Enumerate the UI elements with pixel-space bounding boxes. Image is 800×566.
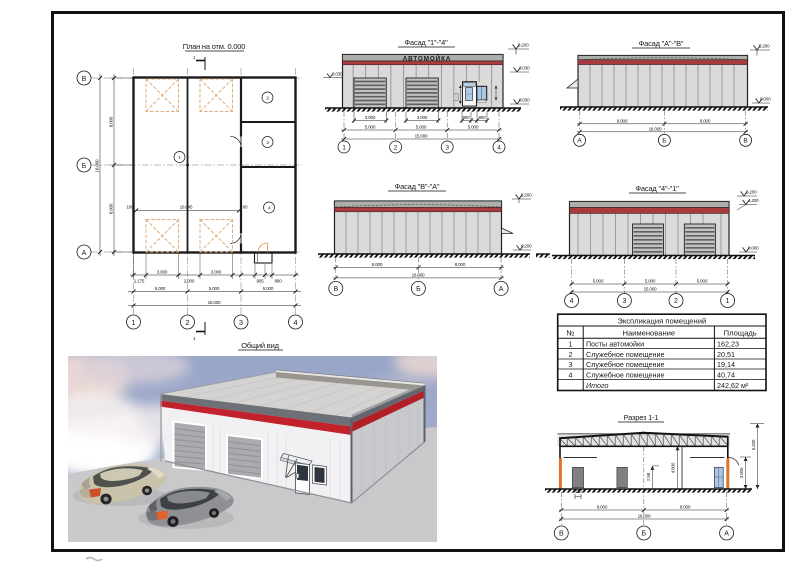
svg-text:5.200: 5.200 [759, 44, 770, 49]
svg-text:Площадь: Площадь [724, 328, 757, 337]
svg-text:15.000: 15.000 [644, 287, 657, 292]
svg-text:Б: Б [642, 531, 647, 538]
svg-text:242,62 м²: 242,62 м² [717, 381, 749, 390]
svg-text:Экспликация помещений: Экспликация помещений [617, 316, 706, 325]
svg-text:4.800: 4.800 [671, 462, 676, 473]
svg-text:А: А [577, 138, 582, 145]
svg-text:3.000: 3.000 [417, 115, 428, 120]
svg-text:2: 2 [185, 318, 189, 327]
svg-text:10.045: 10.045 [180, 205, 193, 210]
svg-text:19,14: 19,14 [717, 360, 735, 369]
svg-text:0.000: 0.000 [748, 246, 759, 251]
svg-text:1: 1 [726, 298, 730, 305]
svg-text:3: 3 [239, 318, 243, 327]
svg-text:Общий вид: Общий вид [241, 341, 279, 350]
svg-text:16.000: 16.000 [95, 159, 100, 172]
svg-text:Б: Б [662, 138, 666, 145]
svg-text:880: 880 [274, 279, 282, 284]
svg-text:3: 3 [622, 298, 626, 305]
svg-text:162,23: 162,23 [717, 340, 739, 349]
svg-text:3: 3 [569, 360, 573, 369]
svg-text:60: 60 [243, 205, 248, 210]
svg-text:Б: Б [416, 286, 421, 293]
svg-text:3.000: 3.000 [365, 115, 376, 120]
svg-text:16.000: 16.000 [649, 126, 662, 131]
svg-text:А: А [82, 250, 87, 257]
svg-text:Наименование: Наименование [622, 328, 675, 337]
svg-text:В: В [82, 76, 87, 83]
svg-text:100: 100 [126, 205, 134, 210]
svg-text:8.000: 8.000 [597, 505, 608, 510]
svg-text:8.000: 8.000 [700, 118, 711, 123]
svg-text:3.000: 3.000 [157, 270, 168, 275]
svg-text:3.000: 3.000 [211, 270, 222, 275]
svg-text:Фасад "В"-"А": Фасад "В"-"А" [395, 182, 440, 191]
svg-text:8.000: 8.000 [617, 118, 628, 123]
svg-text:15.000: 15.000 [415, 134, 428, 139]
svg-text:5.000: 5.000 [416, 125, 427, 130]
svg-text:3.030: 3.030 [332, 72, 343, 77]
svg-text:Служебное помещение: Служебное помещение [586, 350, 665, 359]
svg-text:5.000: 5.000 [365, 125, 376, 130]
svg-text:8.000: 8.000 [372, 262, 383, 267]
svg-text:4: 4 [497, 144, 501, 151]
svg-text:5.000: 5.000 [645, 279, 656, 284]
svg-text:3: 3 [445, 144, 449, 151]
svg-text:4: 4 [570, 298, 574, 305]
svg-text:Б: Б [82, 163, 87, 170]
svg-text:4.200: 4.200 [748, 198, 759, 203]
svg-text:5.000: 5.000 [209, 286, 220, 291]
svg-text:16.000: 16.000 [412, 272, 425, 277]
svg-text:Фасад "4"-"1": Фасад "4"-"1" [635, 184, 679, 193]
svg-text:2: 2 [569, 350, 573, 359]
svg-text:2.58: 2.58 [646, 472, 651, 481]
svg-text:План на отм. 0.000: План на отм. 0.000 [183, 42, 246, 51]
svg-text:5.000: 5.000 [155, 286, 166, 291]
svg-text:8.000: 8.000 [680, 505, 691, 510]
svg-text:5.000: 5.000 [593, 279, 604, 284]
svg-text:1.175: 1.175 [134, 279, 145, 284]
svg-text:8.000: 8.000 [109, 116, 114, 127]
svg-text:А: А [724, 531, 729, 538]
svg-text:2.000: 2.000 [184, 279, 195, 284]
svg-text:№: № [566, 328, 574, 337]
svg-text:8.000: 8.000 [109, 203, 114, 214]
svg-text:5.000: 5.000 [468, 125, 479, 130]
svg-text:40,74: 40,74 [717, 371, 735, 380]
svg-text:905: 905 [256, 279, 264, 284]
svg-text:0.200: 0.200 [521, 244, 532, 249]
svg-text:Посты автомойки: Посты автомойки [586, 340, 644, 349]
svg-text:4: 4 [293, 318, 297, 327]
svg-text:А: А [499, 286, 504, 293]
svg-text:4: 4 [569, 371, 573, 380]
svg-text:900: 900 [478, 115, 486, 120]
svg-text:16.000: 16.000 [638, 514, 651, 519]
svg-text:В: В [743, 138, 747, 145]
svg-text:1: 1 [342, 144, 346, 151]
svg-text:420: 420 [574, 489, 582, 494]
svg-text:8.000: 8.000 [455, 262, 466, 267]
svg-text:3.030: 3.030 [519, 66, 530, 71]
svg-text:Разрез 1-1: Разрез 1-1 [624, 413, 659, 422]
svg-text:5.000: 5.000 [263, 286, 274, 291]
svg-text:Фасад "1"-"4": Фасад "1"-"4" [404, 38, 448, 47]
svg-text:3.000: 3.000 [739, 467, 744, 478]
svg-text:5.000: 5.000 [697, 279, 708, 284]
svg-text:5.200: 5.200 [518, 43, 529, 48]
svg-text:Служебное помещение: Служебное помещение [586, 360, 665, 369]
svg-text:0.030: 0.030 [519, 98, 530, 103]
svg-text:0.000: 0.000 [760, 97, 771, 102]
svg-text:Фасад "А"-"В": Фасад "А"-"В" [639, 39, 684, 48]
svg-text:1: 1 [131, 318, 135, 327]
svg-text:20,51: 20,51 [717, 350, 735, 359]
svg-text:2: 2 [674, 298, 678, 305]
svg-text:Итого: Итого [586, 381, 609, 390]
svg-text:5.200: 5.200 [521, 193, 532, 198]
svg-text:900: 900 [462, 115, 470, 120]
svg-text:15.000: 15.000 [208, 300, 221, 305]
svg-text:В: В [333, 286, 338, 293]
svg-text:1: 1 [569, 340, 573, 349]
svg-text:В: В [559, 531, 564, 538]
svg-text:5.200: 5.200 [751, 439, 756, 450]
svg-text:Служебное помещение: Служебное помещение [586, 371, 665, 380]
svg-text:2: 2 [394, 144, 398, 151]
svg-text:5.200: 5.200 [746, 190, 757, 195]
